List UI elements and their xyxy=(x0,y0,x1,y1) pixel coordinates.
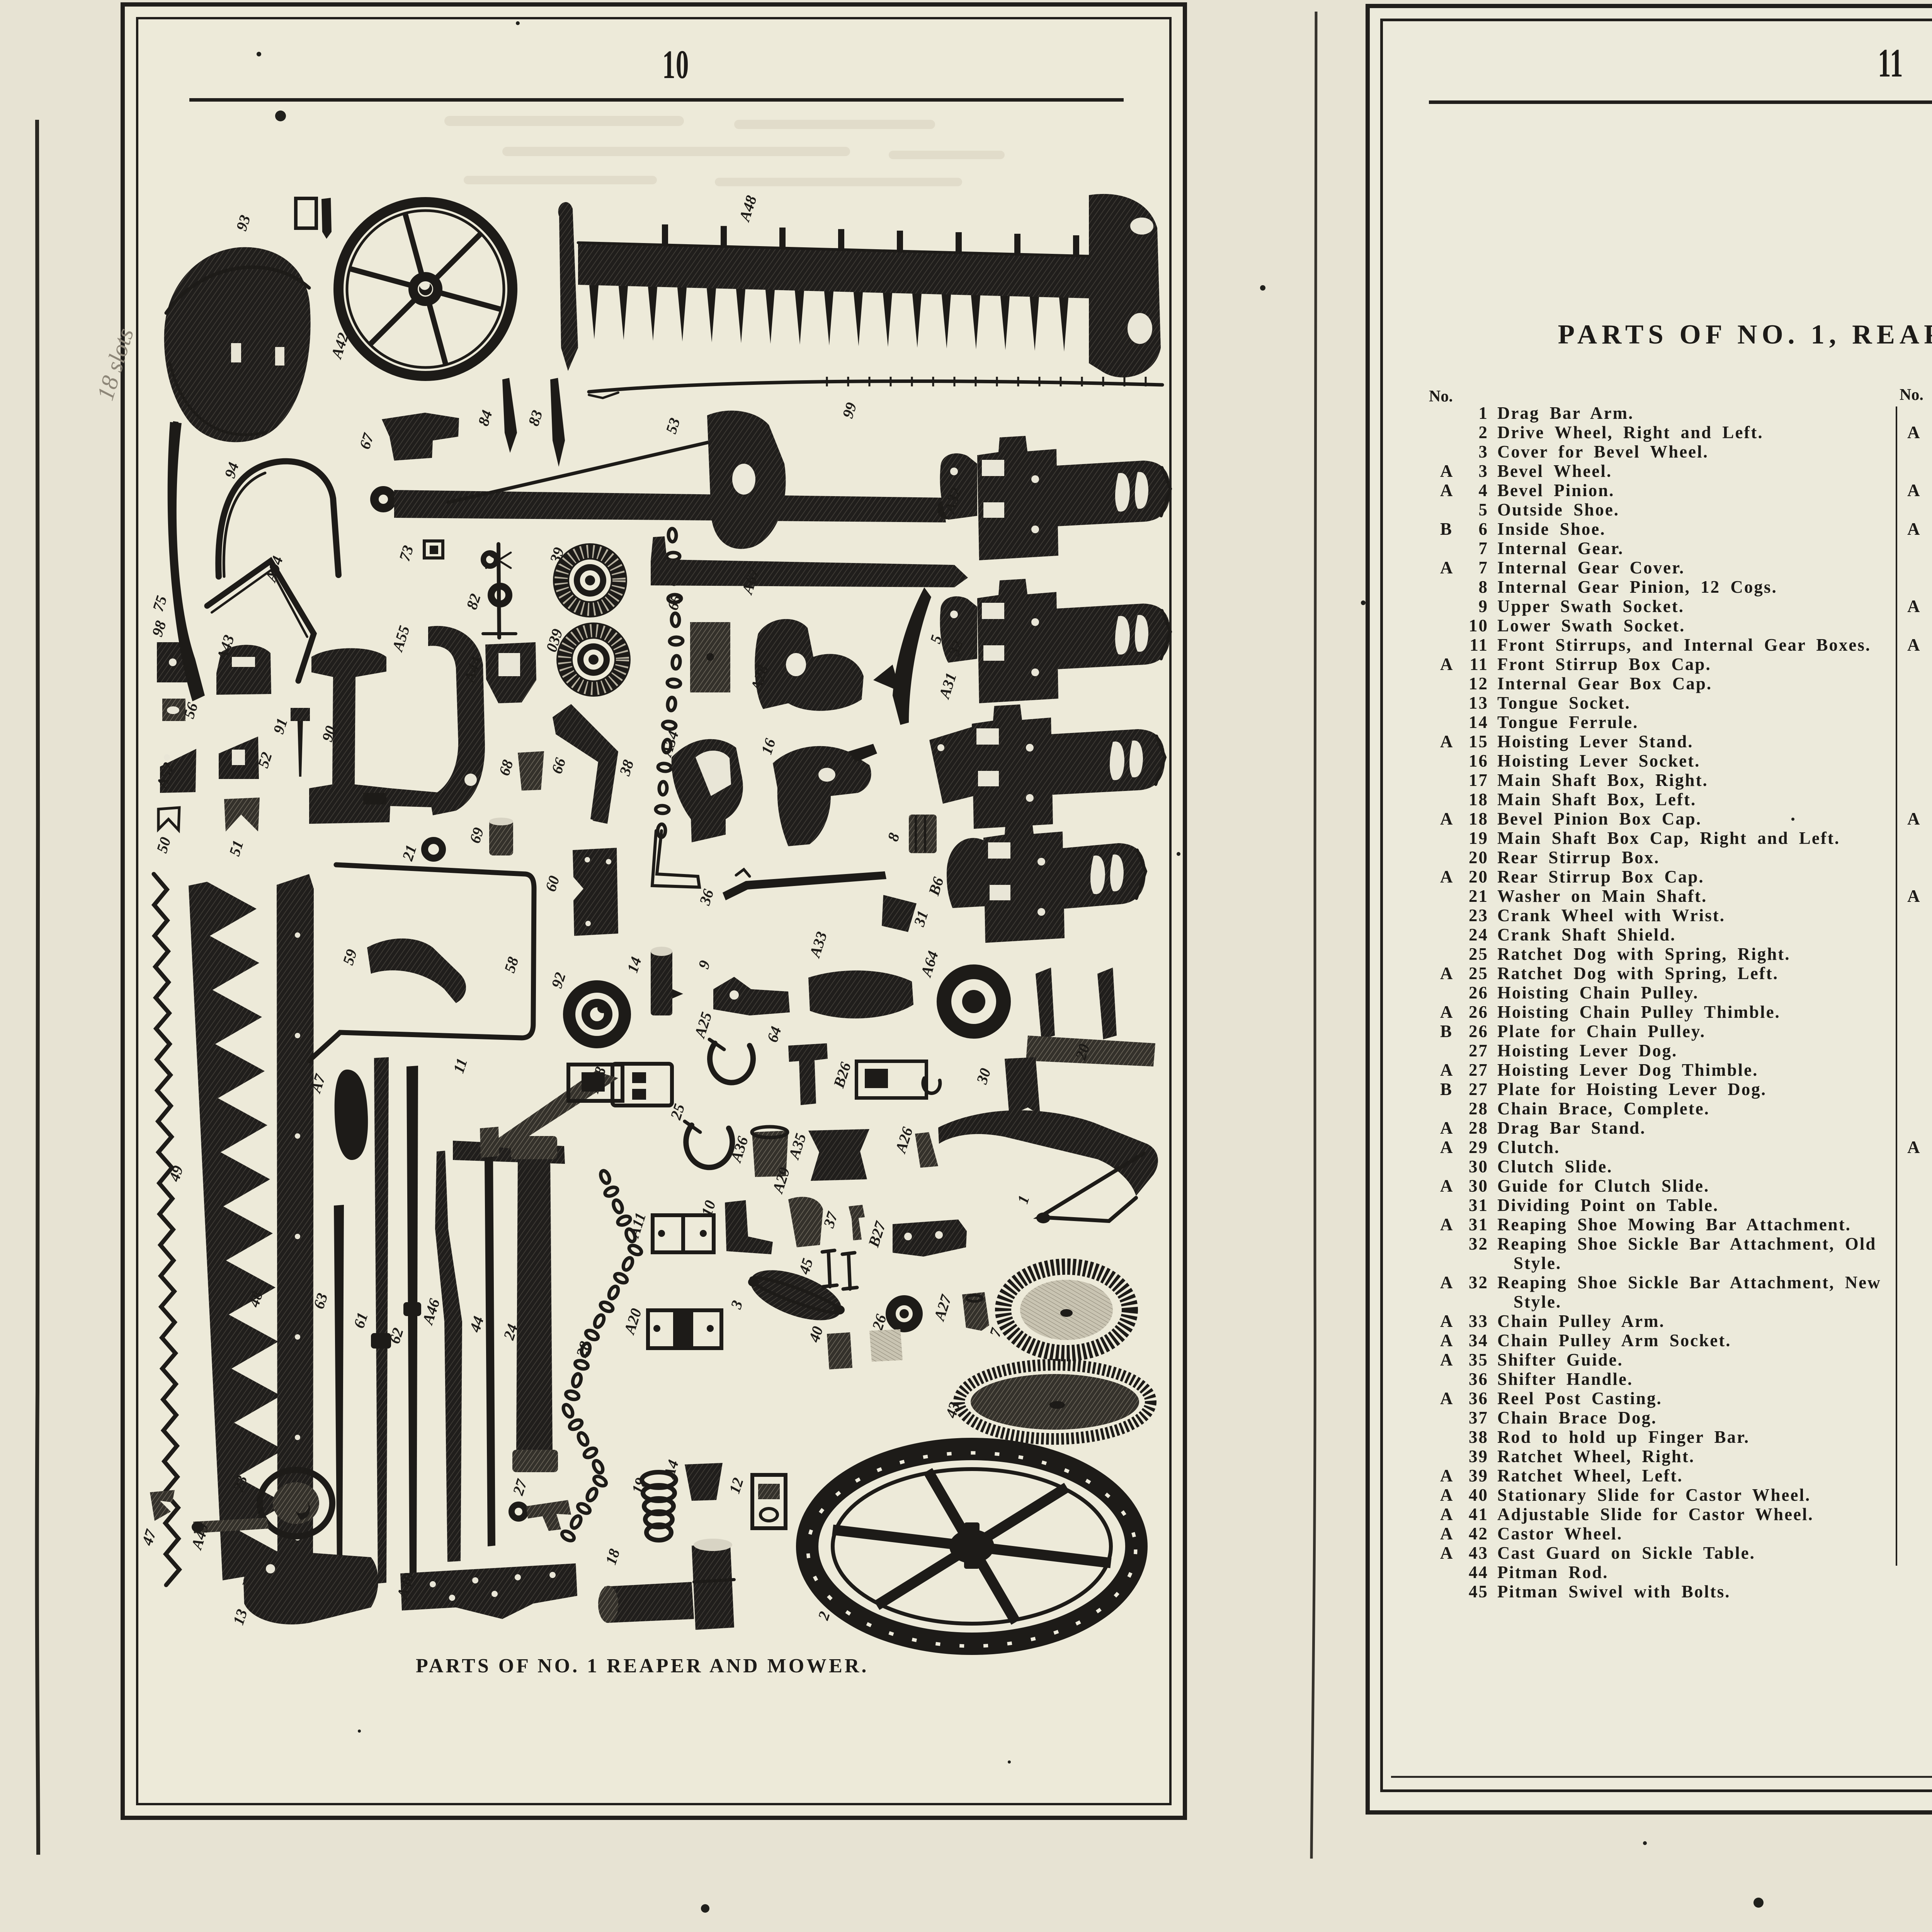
svg-text:1: 1 xyxy=(1014,1193,1033,1206)
svg-text:30: 30 xyxy=(973,1066,994,1087)
svg-text:73: 73 xyxy=(396,543,417,563)
svg-text:12: 12 xyxy=(726,1476,747,1496)
svg-text:B26: B26 xyxy=(830,1060,854,1090)
svg-text:61: 61 xyxy=(350,1310,371,1330)
svg-text:40: 40 xyxy=(805,1324,826,1345)
svg-text:11: 11 xyxy=(450,1056,471,1075)
svg-text:98: 98 xyxy=(148,619,170,639)
svg-text:37: 37 xyxy=(820,1209,841,1230)
svg-text:A35: A35 xyxy=(785,1131,810,1162)
svg-text:69: 69 xyxy=(466,825,487,845)
svg-text:9: 9 xyxy=(695,958,714,971)
svg-text:94: 94 xyxy=(221,460,242,480)
svg-text:36: 36 xyxy=(696,887,717,908)
svg-text:A42: A42 xyxy=(327,330,352,361)
svg-text:67: 67 xyxy=(356,430,378,451)
svg-text:75: 75 xyxy=(149,594,170,614)
svg-text:A33: A33 xyxy=(806,929,830,960)
svg-text:28: 28 xyxy=(572,1339,594,1360)
svg-text:A55: A55 xyxy=(388,623,413,654)
svg-text:B27: B27 xyxy=(864,1219,889,1250)
svg-text:99: 99 xyxy=(839,400,860,420)
svg-text:66: 66 xyxy=(548,756,569,776)
svg-text:A46: A46 xyxy=(418,1296,443,1327)
svg-text:21: 21 xyxy=(398,843,420,863)
svg-text:A49: A49 xyxy=(187,1521,212,1552)
svg-text:A4: A4 xyxy=(660,1458,682,1481)
svg-text:B6: B6 xyxy=(925,875,947,898)
svg-text:53: 53 xyxy=(662,416,684,436)
svg-text:27: 27 xyxy=(509,1476,531,1498)
svg-text:8: 8 xyxy=(884,831,903,844)
svg-text:A20: A20 xyxy=(620,1306,645,1337)
svg-text:64: 64 xyxy=(764,1024,785,1044)
svg-text:A31: A31 xyxy=(935,670,960,701)
svg-text:A27: A27 xyxy=(930,1292,955,1324)
svg-text:92: 92 xyxy=(548,970,569,990)
svg-text:60: 60 xyxy=(542,874,563,894)
svg-text:50: 50 xyxy=(153,835,174,855)
svg-text:19: 19 xyxy=(628,1476,650,1496)
svg-text:93: 93 xyxy=(233,213,254,233)
svg-text:51: 51 xyxy=(226,838,247,858)
svg-text:18: 18 xyxy=(602,1547,623,1567)
svg-text:A48: A48 xyxy=(735,193,760,224)
svg-text:83: 83 xyxy=(525,408,546,428)
svg-text:58: 58 xyxy=(501,955,522,975)
svg-text:84: 84 xyxy=(474,408,496,428)
svg-text:82: 82 xyxy=(463,592,484,612)
svg-text:A25: A25 xyxy=(690,1010,715,1041)
svg-text:47: 47 xyxy=(138,1527,160,1548)
svg-text:91: 91 xyxy=(270,716,291,736)
svg-text:A26: A26 xyxy=(891,1125,916,1156)
svg-text:16: 16 xyxy=(758,736,779,757)
svg-text:44: 44 xyxy=(466,1314,487,1335)
svg-text:A64: A64 xyxy=(917,949,942,980)
svg-text:59: 59 xyxy=(339,947,361,967)
svg-text:18 slots: 18 slots xyxy=(92,325,139,403)
svg-text:3: 3 xyxy=(727,1298,746,1311)
svg-text:65: 65 xyxy=(664,592,685,612)
svg-text:13: 13 xyxy=(230,1607,251,1627)
svg-text:45: 45 xyxy=(795,1256,816,1277)
svg-text:14: 14 xyxy=(624,955,645,975)
svg-text:38: 38 xyxy=(616,758,637,778)
svg-text:68: 68 xyxy=(495,758,517,778)
